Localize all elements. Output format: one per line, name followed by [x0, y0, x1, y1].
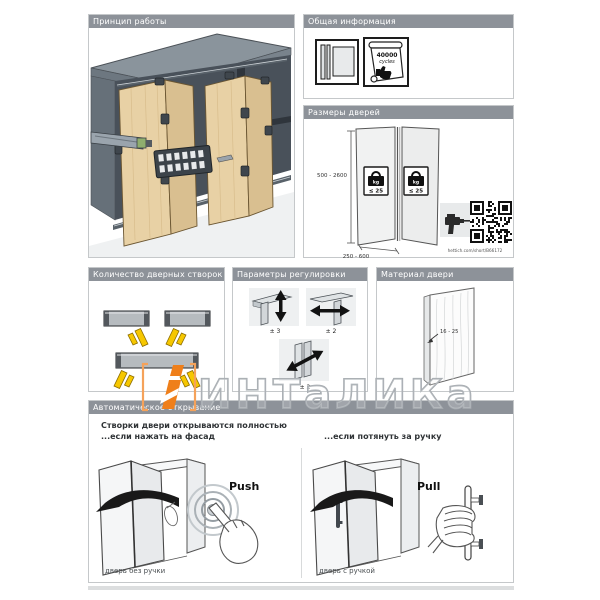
- door-leaf-top-right: [165, 311, 210, 326]
- push-label: Push: [229, 480, 259, 493]
- fold-arrow-icon: [114, 371, 134, 389]
- thickness-range-label: 16 - 25: [440, 329, 458, 335]
- instruction-sheet: Принцип работы: [0, 0, 600, 600]
- height-dimension-line: [347, 131, 355, 243]
- panel-auto-opening: Автоматическое открывание Створки двери …: [88, 400, 514, 583]
- panel-material: Материал двери 16 - 25: [376, 267, 514, 392]
- svg-text:kg: kg: [373, 180, 379, 186]
- panel-leaf-count-header: Количество дверных створок: [89, 268, 224, 281]
- drill-icon: [440, 203, 470, 237]
- door-sizes-diagram: kg ≤ 25 kg ≤ 25 500 - 2600: [304, 119, 515, 259]
- caption-door-without-handle: дверь без ручки: [105, 567, 165, 575]
- certificate-cycles-value: 40000: [377, 52, 398, 59]
- panel-general-info: Общая информация 40000 cycles: [303, 14, 514, 99]
- diagonal-adjustment-label: ± 2: [300, 384, 311, 391]
- svg-text:≤ 25: ≤ 25: [409, 189, 423, 195]
- door-leaf-top-left: [104, 311, 149, 326]
- push-hand-icon: [209, 503, 258, 563]
- pull-illustration: Pull: [305, 448, 509, 578]
- fold-arrow-icon: [166, 329, 186, 347]
- leaf-count-diagram: [89, 281, 226, 393]
- panel-auto-opening-header: Автоматическое открывание: [89, 401, 513, 414]
- door-leaf-wide: [116, 353, 198, 368]
- svg-text:kg: kg: [413, 180, 419, 186]
- fold-arrow-icon: [180, 371, 200, 389]
- fold-arrow-icon: [128, 329, 148, 347]
- general-info-icons: 40000 cycles: [304, 28, 515, 100]
- catalog-book-icon: [316, 40, 358, 84]
- section-divider: [301, 448, 302, 578]
- panel-principle: Принцип работы: [88, 14, 295, 258]
- qr-code: [470, 201, 512, 243]
- vertical-adjustment-label: ± 3: [270, 328, 281, 335]
- panel-material-header: Материал двери: [377, 268, 513, 281]
- auto-opening-push-condition: ...если нажать на фасад: [101, 432, 215, 441]
- panel-principle-header: Принцип работы: [89, 15, 294, 28]
- panel-door-sizes: Размеры дверей kg ≤ 25 kg: [303, 105, 514, 258]
- panel-general-info-header: Общая информация: [304, 15, 513, 28]
- svg-text:≤ 25: ≤ 25: [369, 189, 383, 195]
- cycles-certificate-icon: 40000 cycles: [364, 38, 408, 86]
- horizontal-adjustment-icon: [306, 288, 356, 326]
- page-edge: [88, 586, 514, 590]
- cabinet-illustration: [89, 28, 294, 257]
- vertical-adjustment-icon: [249, 288, 299, 326]
- panel-adjustment-header: Параметры регулировки: [233, 268, 367, 281]
- auto-opening-intro-line1: Створки двери открываются полностью: [101, 421, 287, 430]
- auto-opening-pull-condition: ...если потянуть за ручку: [324, 432, 441, 441]
- adjustment-diagram: ± 3 ± 2: [233, 281, 369, 393]
- horizontal-adjustment-label: ± 2: [326, 328, 337, 335]
- diagonal-adjustment-icon: [279, 339, 329, 381]
- height-range-label: 500 - 2600: [317, 173, 347, 179]
- qr-link: hettich.com/short/B66172: [448, 248, 503, 253]
- width-range-label: 250 - 600: [343, 254, 370, 259]
- width-dimension-line: [358, 244, 399, 254]
- pull-label: Pull: [417, 480, 440, 493]
- push-illustration: Push: [91, 448, 295, 578]
- panel-leaf-count: Количество дверных створок: [88, 267, 225, 392]
- panel-adjustment: Параметры регулировки ± 3: [232, 267, 368, 392]
- material-diagram: 16 - 25: [377, 281, 515, 393]
- weight-kg-icon: kg ≤ 25: [364, 167, 388, 195]
- weight-kg-icon: kg ≤ 25: [404, 167, 428, 195]
- mounting-plate: [154, 145, 213, 178]
- panel-door-sizes-header: Размеры дверей: [304, 106, 513, 119]
- certificate-cycles-unit: cycles: [379, 59, 395, 65]
- caption-door-with-handle: дверь с ручкой: [319, 567, 375, 575]
